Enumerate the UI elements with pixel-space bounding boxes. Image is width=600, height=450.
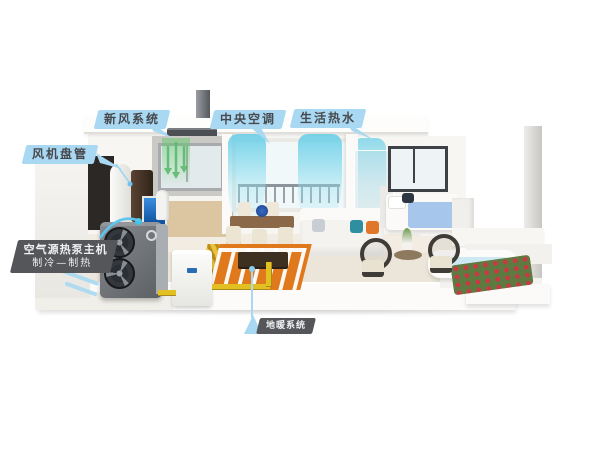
label-central-ac-text: 中央空调 [220, 110, 276, 129]
scene-heat-pump-home-cutaway: 新风系统 中央空调 生活热水 风机盘管 空气源热泵主机 制冷—制热 地暖系统 [0, 0, 600, 450]
label-fan-coil-text: 风机盘管 [32, 145, 88, 164]
label-central-ac: 中央空调 [210, 110, 287, 129]
label-heat-pump-line1: 空气源热泵主机 [24, 243, 108, 257]
leader-lines-overlay [0, 0, 600, 450]
air-intake-arc [100, 219, 140, 238]
fan-coil-leader-dot [128, 182, 133, 187]
label-fresh-air-text: 新风系统 [104, 110, 160, 129]
fan-coil-leader-line [116, 164, 129, 182]
floor-heating-leader-dot [249, 266, 255, 272]
label-hot-water: 生活热水 [290, 109, 367, 128]
label-floor-heating: 地暖系统 [256, 318, 316, 334]
label-hot-water-text: 生活热水 [300, 109, 356, 128]
label-fan-coil: 风机盘管 [22, 145, 99, 164]
label-fresh-air: 新风系统 [94, 110, 171, 129]
central-ac-label-tail [250, 127, 270, 144]
label-floor-heating-text: 地暖系统 [266, 319, 306, 333]
label-heat-pump-line2: 制冷—制热 [20, 257, 104, 270]
label-heat-pump: 空气源热泵主机 制冷—制热 [10, 240, 118, 273]
